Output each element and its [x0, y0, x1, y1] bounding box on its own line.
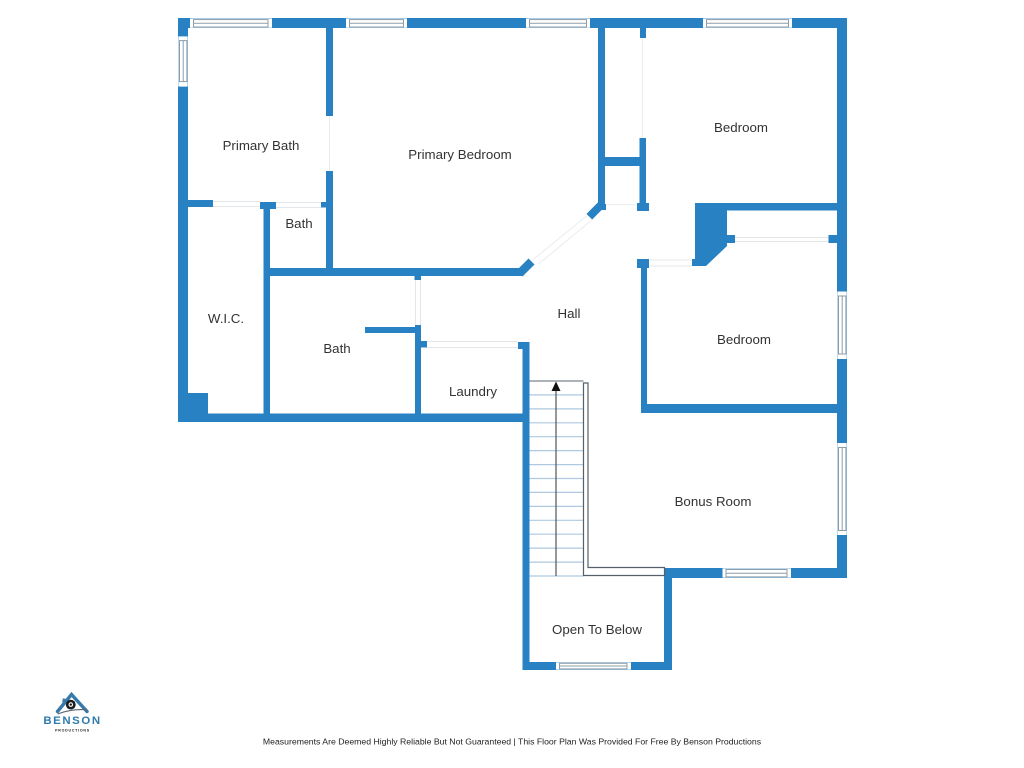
svg-text:W.I.C.: W.I.C.	[208, 311, 244, 326]
svg-text:BENSON: BENSON	[43, 715, 101, 727]
svg-text:Primary Bedroom: Primary Bedroom	[408, 147, 511, 162]
svg-text:Bath: Bath	[323, 341, 350, 356]
svg-text:Open To Below: Open To Below	[552, 622, 642, 637]
svg-text:Laundry: Laundry	[449, 384, 497, 399]
svg-text:Hall: Hall	[558, 306, 581, 321]
svg-text:Measurements Are Deemed Highly: Measurements Are Deemed Highly Reliable …	[263, 737, 762, 747]
svg-text:Bedroom: Bedroom	[717, 332, 771, 347]
svg-text:Bedroom: Bedroom	[714, 120, 768, 135]
svg-text:Primary Bath: Primary Bath	[223, 138, 300, 153]
svg-text:Bonus Room: Bonus Room	[675, 494, 752, 509]
svg-text:PRODUCTIONS: PRODUCTIONS	[55, 729, 90, 733]
svg-text:Bath: Bath	[285, 216, 312, 231]
